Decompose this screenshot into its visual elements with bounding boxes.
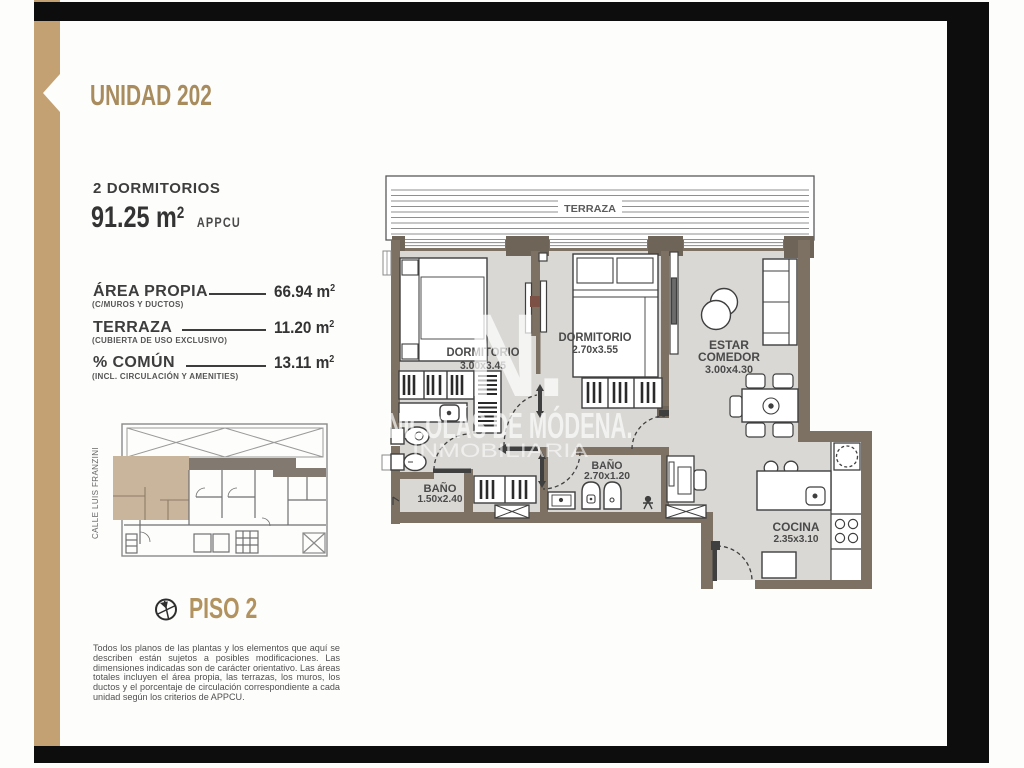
svg-text:COMEDOR: COMEDOR xyxy=(698,350,760,364)
svg-text:TERRAZA: TERRAZA xyxy=(564,203,616,215)
svg-text:2.70x3.55: 2.70x3.55 xyxy=(572,344,618,356)
svg-text:NICOLÁS DE MÓDENA.: NICOLÁS DE MÓDENA. xyxy=(388,404,633,446)
svg-text:2.70x1.20: 2.70x1.20 xyxy=(584,471,630,482)
svg-text:N.: N. xyxy=(468,289,565,421)
svg-text:CALLE LUIS FRANZINI: CALLE LUIS FRANZINI xyxy=(91,447,100,539)
svg-text:3.00x4.30: 3.00x4.30 xyxy=(705,364,753,376)
svg-text:COCINA: COCINA xyxy=(773,520,820,534)
svg-text:2.35x3.10: 2.35x3.10 xyxy=(774,534,819,545)
svg-text:INMOBILIARIA: INMOBILIARIA xyxy=(412,441,588,462)
svg-text:1.50x2.40: 1.50x2.40 xyxy=(418,494,463,505)
svg-text:DORMITORIO: DORMITORIO xyxy=(559,330,632,344)
